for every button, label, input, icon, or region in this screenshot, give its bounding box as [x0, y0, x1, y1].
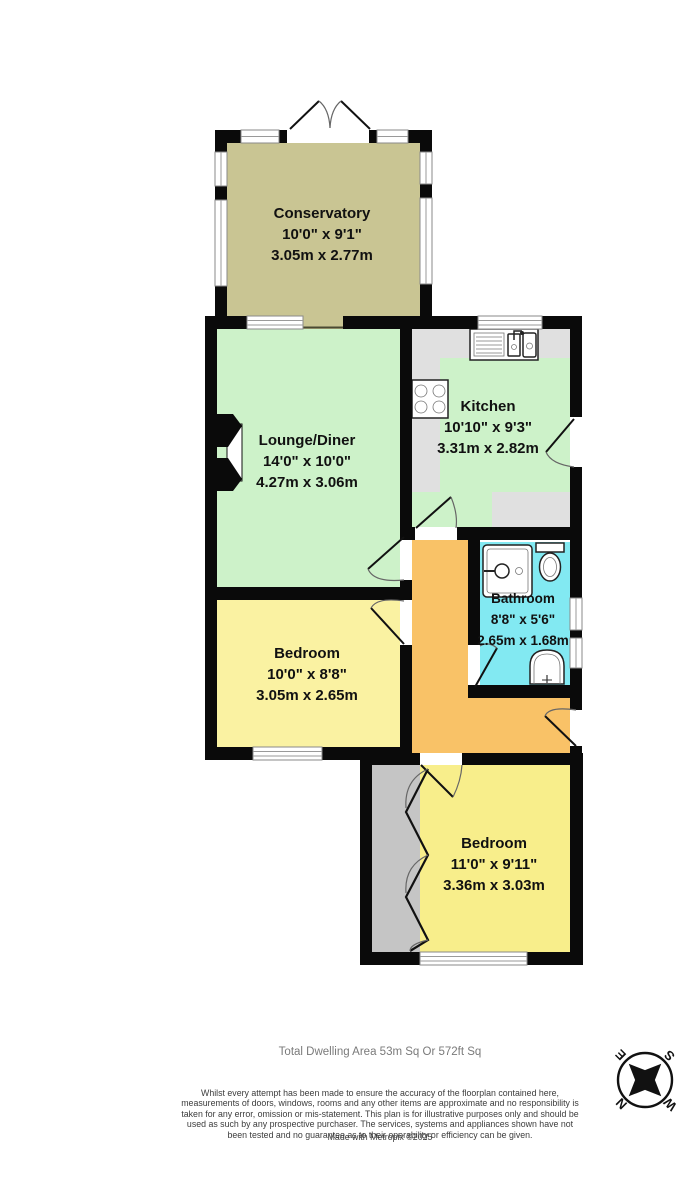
conservatory-french-doors: [290, 101, 370, 129]
room-name: Bedroom: [200, 643, 414, 664]
conservatory-label: Conservatory 10'0" x 9'1" 3.05m x 2.77m: [215, 203, 429, 266]
room-size-imperial: 10'10" x 9'3": [381, 417, 595, 438]
total-dwelling-area: Total Dwelling Area 53m Sq Or 572ft Sq: [75, 1046, 685, 1058]
kitchen-label: Kitchen 10'10" x 9'3" 3.31m x 2.82m: [381, 396, 595, 459]
bathroom-label: Bathroom 8'8" x 5'6" 2.65m x 1.68m: [416, 588, 630, 651]
compass-w: W: [660, 1094, 680, 1114]
room-size-metric: 3.05m x 2.77m: [215, 245, 429, 266]
compass-rose-icon: N E S W: [588, 1022, 686, 1138]
bedroom2-label: Bedroom 11'0" x 9'11" 3.36m x 3.03m: [387, 833, 601, 896]
room-name: Bedroom: [387, 833, 601, 854]
room-size-metric: 3.36m x 3.03m: [387, 875, 601, 896]
room-name: Kitchen: [381, 396, 595, 417]
room-size-imperial: 11'0" x 9'11": [387, 854, 601, 875]
bedroom1-label: Bedroom 10'0" x 8'8" 3.05m x 2.65m: [200, 643, 414, 706]
floorplan-page: N E S W Conservatory 10'0" x 9'1" 3.05m …: [0, 0, 686, 1200]
room-size-metric: 3.05m x 2.65m: [200, 685, 414, 706]
room-size-imperial: 10'0" x 9'1": [215, 224, 429, 245]
room-size-imperial: 10'0" x 8'8": [200, 664, 414, 685]
wash-basin-icon: [530, 650, 564, 684]
room-name: Conservatory: [215, 203, 429, 224]
room-size-metric: 4.27m x 3.06m: [200, 472, 414, 493]
room-name: Bathroom: [416, 588, 630, 609]
room-size-metric: 2.65m x 1.68m: [416, 630, 630, 651]
compass-n: N: [613, 1095, 630, 1112]
room-size-metric: 3.31m x 2.82m: [381, 438, 595, 459]
metropix-credit: Made with Metropix ©2025: [178, 1132, 582, 1142]
room-size-imperial: 8'8" x 5'6": [416, 609, 630, 630]
kitchen-sink-icon: [470, 329, 538, 360]
